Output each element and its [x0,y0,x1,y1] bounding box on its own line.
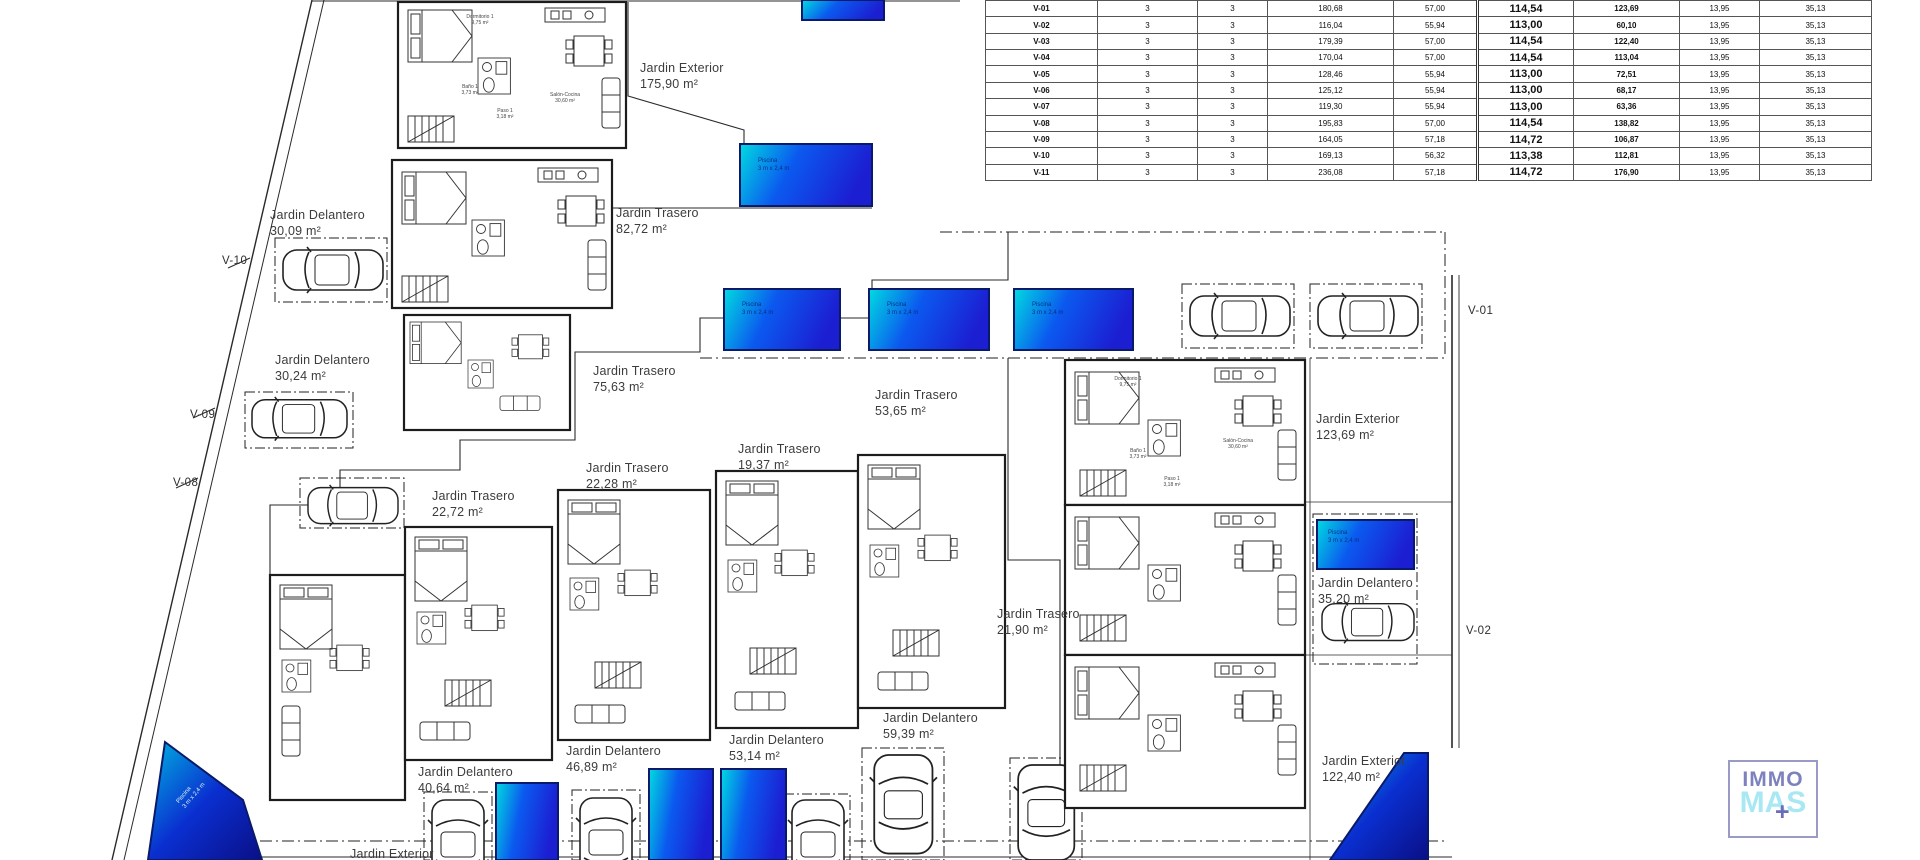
pool [649,769,713,860]
table-row: V-0633125,1255,94113,0068,1713,9535,13 [986,82,1872,98]
garden-label: Jardin Delantero46,89 m² [566,743,661,775]
table-row: V-0933164,0557,18114,72106,8713,9535,13 [986,131,1872,147]
pool [802,0,884,20]
garden-label: Jardin Trasero82,72 m² [616,205,699,237]
plot-label-v02: V-02 [1466,625,1491,637]
pool [869,289,989,350]
table-row: V-1133236,0857,18114,72176,9013,9535,13 [986,164,1872,180]
logo-plus-icon: + [1775,798,1790,827]
svg-text:3,73 m²: 3,73 m² [462,90,479,96]
car-icon [788,800,848,860]
garden-label: Jardin Delantero53,14 m² [729,732,824,764]
car-icon [308,485,398,526]
garden-label: Jardin Exterior122,40 m² [1322,753,1406,785]
svg-text:3,18 m²: 3,18 m² [1164,482,1181,488]
pool-label: Piscina3 m x 2,4 m [758,158,789,174]
garden-label: Jardin Delantero30,09 m² [270,207,365,239]
svg-text:9,75 m²: 9,75 m² [472,20,489,26]
garden-label: Jardin Exterior123,69 m² [1316,411,1400,443]
pool-label: Piscina3 m x 2,4 m [742,302,773,318]
villa-surface-table: V-0133180,6857,00114,54123,6913,9535,13 … [985,0,1872,181]
svg-text:3,73 m²: 3,73 m² [1130,454,1147,460]
garden-label: Jardin Delantero35,20 m² [1318,575,1413,607]
table-row: V-0733119,3055,94113,0063,3613,9535,13 [986,99,1872,115]
car-icon [283,247,383,293]
svg-text:9,75 m²: 9,75 m² [1120,382,1137,388]
cell-id: V-01 [986,1,1098,17]
garden-label: Jardin Trasero19,37 m² [738,441,821,473]
table-row: V-0133180,6857,00114,54123,6913,9535,13 [986,1,1872,17]
pool [148,742,262,860]
car-icon [252,397,347,441]
table-row: V-0833195,8357,00114,54138,8213,9535,13 [986,115,1872,131]
pool-label: Piscina3 m x 2,4 m [1328,530,1359,546]
immomas-logo: IMMO MAS + [1728,760,1818,838]
pool [721,769,786,860]
pool-label: Piscina3 m x 2,4 m [1032,302,1063,318]
table-row: V-0233116,0455,94113,0060,1013,9535,13 [986,17,1872,33]
car-icon [1318,293,1418,339]
garden-label: Jardin Trasero21,90 m² [997,606,1080,638]
pool-label: Piscina3 m x 2,4 m [887,302,918,318]
svg-text:30,60 m²: 30,60 m² [1228,444,1248,450]
car-icon [576,798,636,860]
pool [740,144,872,206]
logo-text-mas: MAS [1730,788,1816,818]
table-row: V-0533128,4655,94113,0072,5113,9535,13 [986,66,1872,82]
plot-label-v01: V-01 [1468,305,1493,317]
plot-label-v10: V-10 [222,255,247,267]
garden-label: Jardin Trasero75,63 m² [593,363,676,395]
garden-label: Jardin Exterior [350,846,434,860]
garden-label: Jardin Delantero40,64 m² [418,764,513,796]
garden-label: Jardin Delantero59,39 m² [883,710,978,742]
table-row: V-0333179,3957,00114,54122,4013,9535,13 [986,33,1872,49]
garden-label: Jardin Trasero53,65 m² [875,387,958,419]
garden-label: Jardin Trasero22,28 m² [586,460,669,492]
car-icon [1190,293,1290,339]
site-plan-sheet: Dormitorio 19,75 m² Baño 13,73 m² Paso 1… [0,0,1920,860]
pool [724,289,840,350]
garden-label: Jardin Exterior175,90 m² [640,60,724,92]
svg-text:3,18 m²: 3,18 m² [497,114,514,120]
car-icon [428,800,488,860]
table-row: V-0433170,0457,00114,54113,0413,9535,13 [986,50,1872,66]
car-icon [1322,601,1414,643]
plot-label-v09: V-09 [190,409,215,421]
car-icon [870,755,937,854]
garden-label: Jardin Delantero30,24 m² [275,352,370,384]
garden-label: Jardin Trasero22,72 m² [432,488,515,520]
plot-label-v08: V-08 [173,477,198,489]
pool [1014,289,1133,350]
table-row: V-1033169,1356,32113,38112,8113,9535,13 [986,148,1872,164]
svg-text:30,60 m²: 30,60 m² [555,98,575,104]
